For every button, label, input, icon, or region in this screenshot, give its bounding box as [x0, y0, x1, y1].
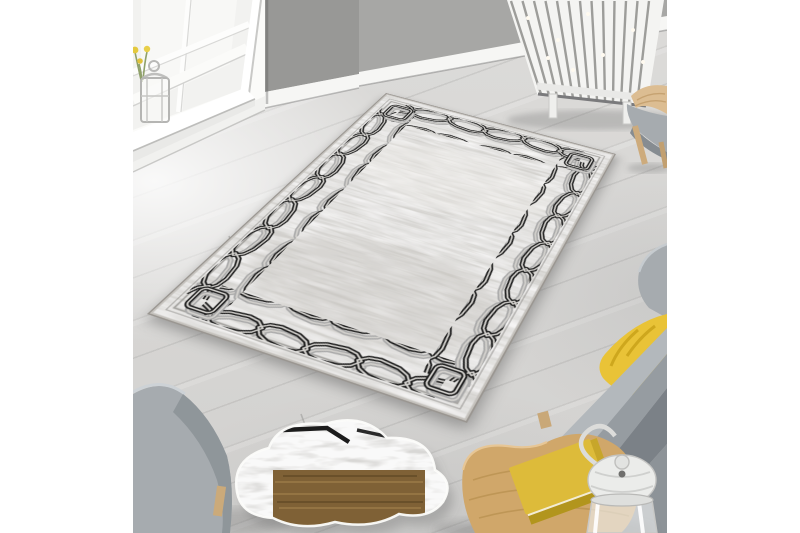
- lantern-knob: [615, 455, 629, 469]
- white-matte-right: [667, 0, 800, 533]
- product-photo-page: [0, 0, 800, 533]
- white-matte-left: [0, 0, 133, 533]
- cloud-mirror: [223, 410, 454, 533]
- chair-wood-leg: [537, 411, 552, 429]
- chair-back: [638, 244, 667, 318]
- lantern-neck: [591, 494, 653, 506]
- lantern-keyhole: [619, 471, 626, 478]
- foreground-layer: [133, 0, 667, 533]
- armchair-top-right: [627, 85, 667, 173]
- room-photo: [133, 0, 667, 533]
